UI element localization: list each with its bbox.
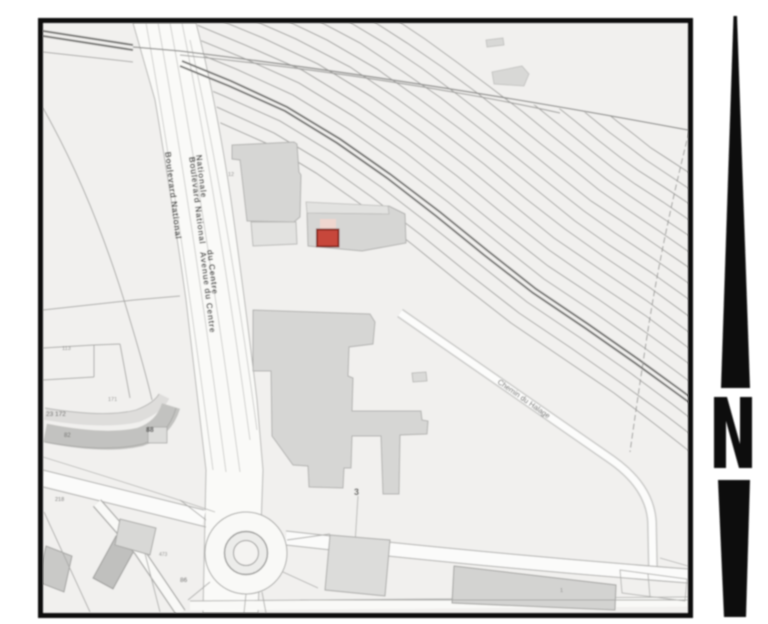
svg-text:82: 82 — [64, 433, 71, 439]
svg-text:88: 88 — [146, 427, 154, 434]
svg-text:86: 86 — [180, 577, 188, 584]
svg-text:23 172: 23 172 — [46, 411, 66, 418]
svg-text:218: 218 — [55, 497, 64, 503]
svg-text:1: 1 — [560, 588, 563, 594]
svg-text:171: 171 — [108, 397, 117, 403]
svg-text:3: 3 — [354, 487, 359, 497]
svg-text:12: 12 — [228, 172, 234, 178]
svg-text:113: 113 — [62, 346, 71, 352]
svg-text:473: 473 — [159, 552, 168, 558]
